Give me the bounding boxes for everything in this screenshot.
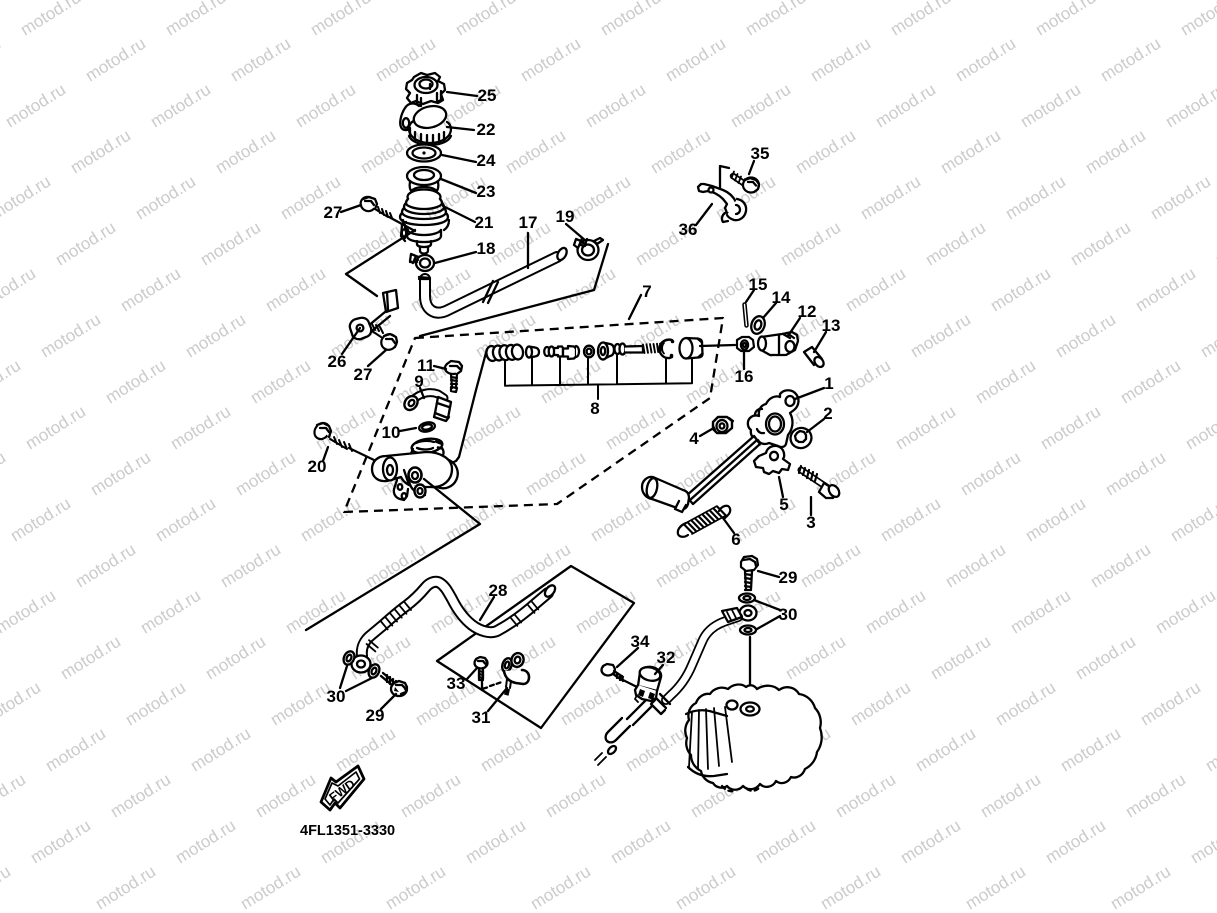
svg-text:14: 14 <box>772 288 791 307</box>
svg-text:27: 27 <box>324 203 343 222</box>
svg-text:1: 1 <box>824 374 833 393</box>
svg-text:19: 19 <box>556 207 575 226</box>
svg-text:33: 33 <box>447 674 466 693</box>
svg-text:32: 32 <box>657 648 676 667</box>
svg-text:13: 13 <box>822 316 841 335</box>
svg-text:12: 12 <box>798 302 817 321</box>
svg-text:3: 3 <box>806 513 815 532</box>
svg-text:34: 34 <box>631 632 650 651</box>
svg-text:7: 7 <box>642 282 651 301</box>
svg-text:9: 9 <box>414 372 423 391</box>
svg-text:2: 2 <box>823 404 832 423</box>
svg-text:10: 10 <box>382 423 401 442</box>
svg-text:29: 29 <box>366 706 385 725</box>
svg-text:24: 24 <box>477 151 496 170</box>
svg-text:16: 16 <box>735 367 754 386</box>
svg-text:22: 22 <box>477 120 496 139</box>
svg-text:4FL1351-3330: 4FL1351-3330 <box>300 823 395 839</box>
svg-text:5: 5 <box>779 495 788 514</box>
svg-text:29: 29 <box>779 568 798 587</box>
svg-text:27: 27 <box>354 365 373 384</box>
svg-text:15: 15 <box>749 275 768 294</box>
svg-text:4: 4 <box>689 429 699 448</box>
svg-text:36: 36 <box>679 220 698 239</box>
svg-text:23: 23 <box>477 182 496 201</box>
svg-text:30: 30 <box>779 605 798 624</box>
svg-text:31: 31 <box>472 708 491 727</box>
svg-text:28: 28 <box>489 581 508 600</box>
svg-text:20: 20 <box>308 457 327 476</box>
svg-text:6: 6 <box>731 530 740 549</box>
svg-text:21: 21 <box>475 213 494 232</box>
svg-text:25: 25 <box>478 86 497 105</box>
svg-text:30: 30 <box>327 687 346 706</box>
svg-text:18: 18 <box>477 239 496 258</box>
svg-text:35: 35 <box>751 144 770 163</box>
svg-text:8: 8 <box>590 399 599 418</box>
svg-text:26: 26 <box>328 352 347 371</box>
svg-text:17: 17 <box>519 213 538 232</box>
